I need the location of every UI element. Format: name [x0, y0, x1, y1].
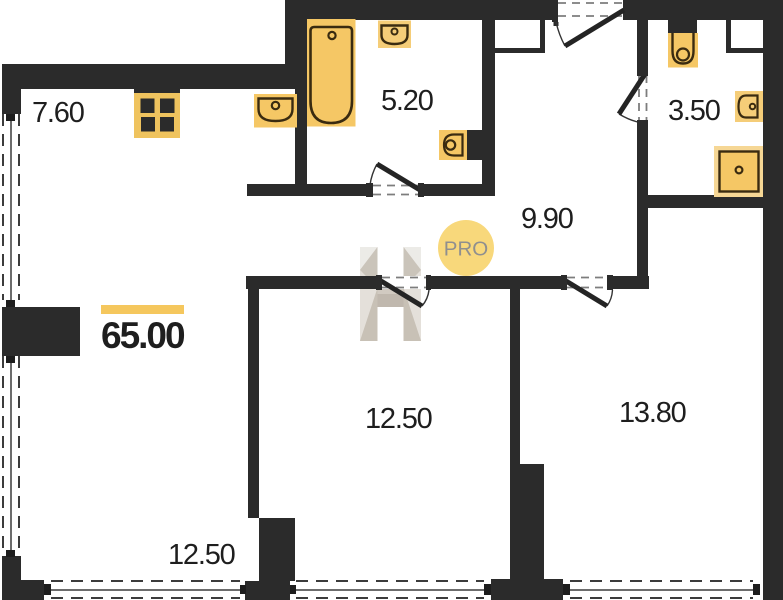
- svg-text:5.20: 5.20: [381, 85, 433, 117]
- svg-text:7.60: 7.60: [32, 97, 84, 129]
- svg-text:PRO: PRO: [444, 238, 488, 261]
- svg-text:3.50: 3.50: [668, 95, 720, 127]
- svg-text:12.50: 12.50: [168, 539, 235, 571]
- svg-text:9.90: 9.90: [521, 203, 573, 235]
- svg-text:12.50: 12.50: [365, 403, 432, 435]
- svg-text:13.80: 13.80: [619, 397, 686, 429]
- svg-text:65.00: 65.00: [101, 315, 185, 356]
